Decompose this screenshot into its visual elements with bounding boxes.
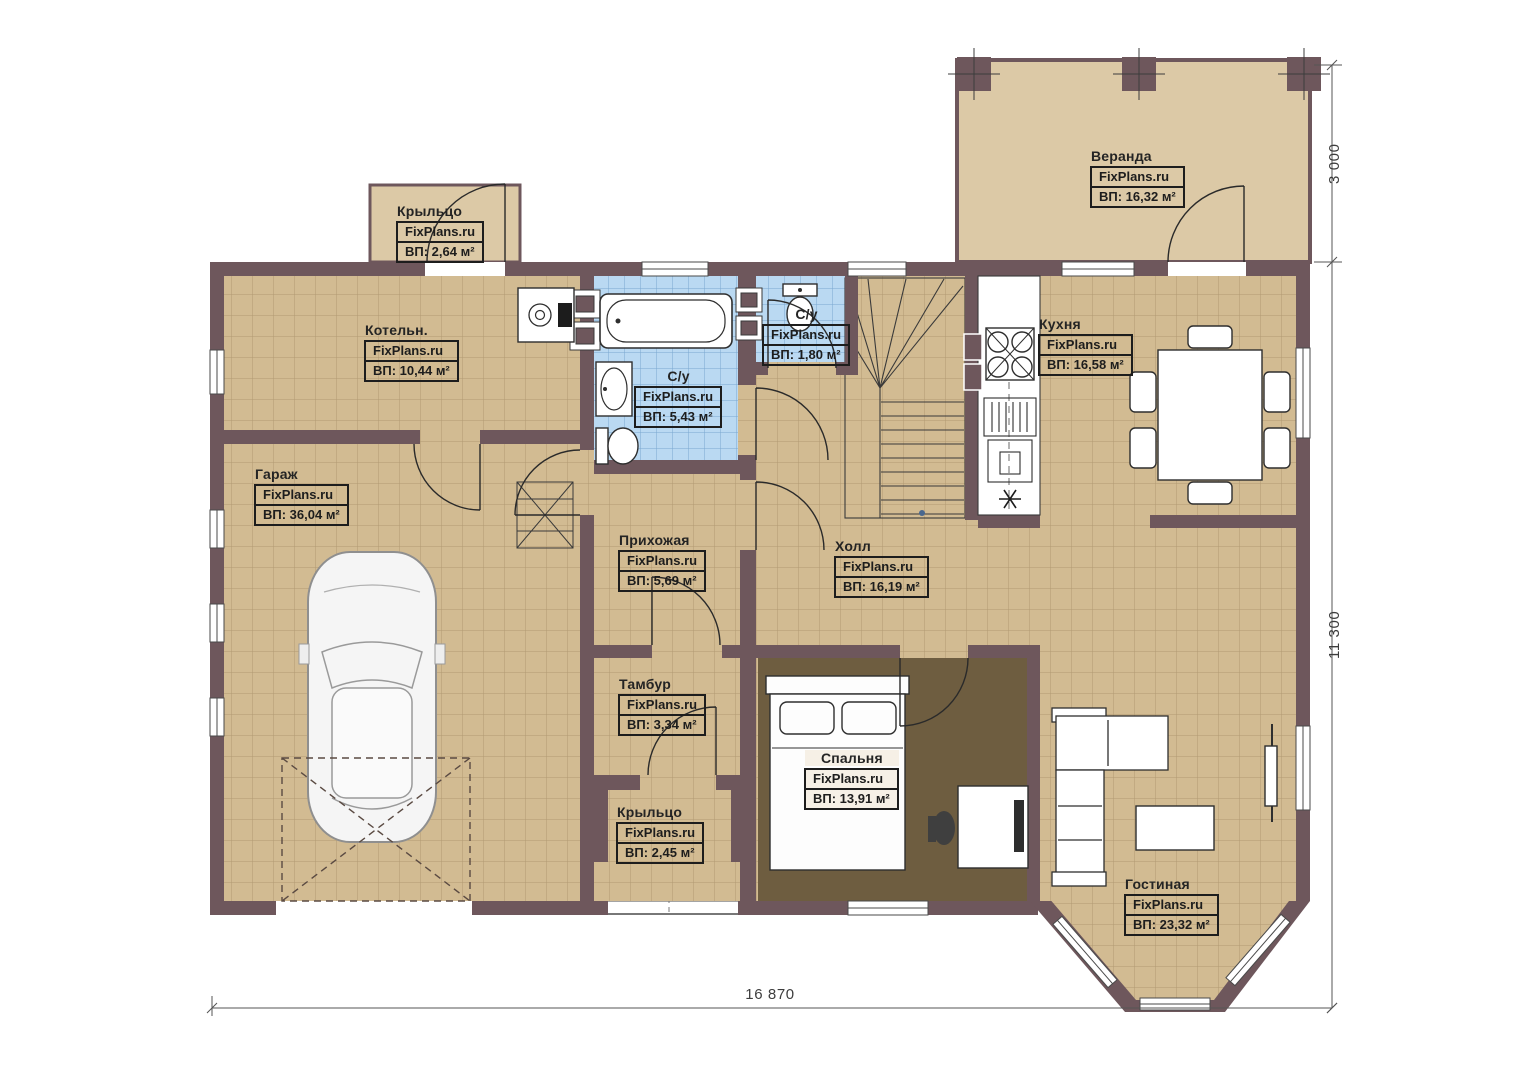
- room-info-box: FixPlans.ru ВП: 3,34 м²: [618, 694, 706, 736]
- area-label: ВП: 2,45 м²: [618, 842, 702, 862]
- room-label-holl: Холл FixPlans.ru ВП: 16,19 м²: [834, 538, 929, 598]
- room-name: Крыльцо: [397, 203, 484, 219]
- brand-label: FixPlans.ru: [1126, 896, 1217, 914]
- brand-label: FixPlans.ru: [398, 223, 482, 241]
- floor-plan-page: Веранда FixPlans.ru ВП: 16,32 м² Крыльцо…: [0, 0, 1528, 1080]
- room-label-garazh: Гараж FixPlans.ru ВП: 36,04 м²: [254, 466, 349, 526]
- window-right-living: [1296, 726, 1310, 810]
- area-label: ВП: 36,04 м²: [256, 504, 347, 524]
- monitor: [1014, 800, 1024, 852]
- garage-door-opening: [276, 901, 472, 915]
- bathroom-sink: [596, 362, 632, 416]
- brand-label: FixPlans.ru: [836, 558, 927, 576]
- brand-label: FixPlans.ru: [806, 770, 897, 788]
- coffee-table: [1136, 806, 1214, 850]
- room-label-spalnya: Спальня FixPlans.ru ВП: 13,91 м²: [804, 750, 899, 810]
- window-left-garage-1: [210, 510, 224, 548]
- floor-plan-canvas: [0, 0, 1528, 1080]
- room-label-kryltso-bottom: Крыльцо FixPlans.ru ВП: 2,45 м²: [616, 804, 704, 864]
- room-info-box: FixPlans.ru ВП: 36,04 м²: [254, 484, 349, 526]
- bathtub: [600, 294, 732, 348]
- brand-label: FixPlans.ru: [366, 342, 457, 360]
- room-label-tambur: Тамбур FixPlans.ru ВП: 3,34 м²: [618, 676, 706, 736]
- area-label: ВП: 5,69 м²: [620, 570, 704, 590]
- area-label: ВП: 16,19 м²: [836, 576, 927, 596]
- room-info-box: FixPlans.ru ВП: 5,43 м²: [634, 386, 722, 428]
- brand-label: FixPlans.ru: [764, 326, 848, 344]
- room-name: Спальня: [805, 750, 899, 766]
- room-name: Гостиная: [1125, 876, 1219, 892]
- window-left-garage-2: [210, 604, 224, 642]
- room-name: С/у: [763, 306, 850, 322]
- dimension-main-height-label: 11 300: [1326, 262, 1343, 1008]
- room-name: Тамбур: [619, 676, 706, 692]
- area-label: ВП: 16,32 м²: [1092, 186, 1183, 206]
- area-label: ВП: 3,34 м²: [620, 714, 704, 734]
- window-left-garage-3: [210, 698, 224, 736]
- room-info-box: FixPlans.ru ВП: 16,19 м²: [834, 556, 929, 598]
- area-label: ВП: 10,44 м²: [366, 360, 457, 380]
- room-info-box: FixPlans.ru ВП: 23,32 м²: [1124, 894, 1219, 936]
- porch-door-opening: [425, 262, 505, 276]
- room-info-box: FixPlans.ru ВП: 16,32 м²: [1090, 166, 1185, 208]
- area-label: ВП: 13,91 м²: [806, 788, 897, 808]
- room-name: Котельн.: [365, 322, 459, 338]
- room-name: Гараж: [255, 466, 349, 482]
- room-label-kuhnya: Кухня FixPlans.ru ВП: 16,58 м²: [1038, 316, 1133, 376]
- room-info-box: FixPlans.ru ВП: 1,80 м²: [762, 324, 850, 366]
- car: [299, 552, 445, 842]
- window-veranda: [1062, 262, 1134, 276]
- brand-label: FixPlans.ru: [618, 824, 702, 842]
- room-name: С/у: [635, 368, 722, 384]
- veranda-door-opening: [1168, 262, 1246, 276]
- room-label-gostinaya: Гостиная FixPlans.ru ВП: 23,32 м²: [1124, 876, 1219, 936]
- area-label: ВП: 5,43 м²: [636, 406, 720, 426]
- room-name: Крыльцо: [617, 804, 704, 820]
- desk-chair: [933, 811, 955, 845]
- room-info-box: FixPlans.ru ВП: 2,64 м²: [396, 221, 484, 263]
- room-name: Веранда: [1091, 148, 1185, 164]
- room-label-veranda: Веранда FixPlans.ru ВП: 16,32 м²: [1090, 148, 1185, 208]
- room-name: Кухня: [1039, 316, 1133, 332]
- window-left-boiler: [210, 350, 224, 394]
- room-info-box: FixPlans.ru ВП: 2,45 м²: [616, 822, 704, 864]
- window-top-bath: [642, 262, 708, 276]
- room-name: Холл: [835, 538, 929, 554]
- room-info-box: FixPlans.ru ВП: 5,69 м²: [618, 550, 706, 592]
- window-right-kitchen: [1296, 348, 1310, 438]
- room-label-kryltso-top: Крыльцо FixPlans.ru ВП: 2,64 м²: [396, 203, 484, 263]
- bathroom-toilet: [596, 428, 638, 464]
- room-label-prihozhaya: Прихожая FixPlans.ru ВП: 5,69 м²: [618, 532, 706, 592]
- area-label: ВП: 16,58 м²: [1040, 354, 1131, 374]
- window-bottom-bedroom: [848, 901, 928, 915]
- area-label: ВП: 23,32 м²: [1126, 914, 1217, 934]
- dimension-veranda-depth-label: 3 000: [1326, 65, 1343, 262]
- room-label-su-big: С/у FixPlans.ru ВП: 5,43 м²: [634, 368, 722, 428]
- brand-label: FixPlans.ru: [1040, 336, 1131, 354]
- brand-label: FixPlans.ru: [256, 486, 347, 504]
- washing-machine: [518, 288, 574, 342]
- room-info-box: FixPlans.ru ВП: 13,91 м²: [804, 768, 899, 810]
- room-info-box: FixPlans.ru ВП: 10,44 м²: [364, 340, 459, 382]
- dimension-width-label: 16 870: [660, 986, 880, 1003]
- brand-label: FixPlans.ru: [620, 552, 704, 570]
- dining-table: [1158, 350, 1262, 480]
- brand-label: FixPlans.ru: [620, 696, 704, 714]
- room-label-kotelnaya: Котельн. FixPlans.ru ВП: 10,44 м²: [364, 322, 459, 382]
- room-info-box: FixPlans.ru ВП: 16,58 м²: [1038, 334, 1133, 376]
- room-label-su-small: С/у FixPlans.ru ВП: 1,80 м²: [762, 306, 850, 366]
- brand-label: FixPlans.ru: [1092, 168, 1183, 186]
- area-label: ВП: 2,64 м²: [398, 241, 482, 261]
- window-top-stairs: [848, 262, 906, 276]
- area-label: ВП: 1,80 м²: [764, 344, 848, 364]
- brand-label: FixPlans.ru: [636, 388, 720, 406]
- room-name: Прихожая: [619, 532, 706, 548]
